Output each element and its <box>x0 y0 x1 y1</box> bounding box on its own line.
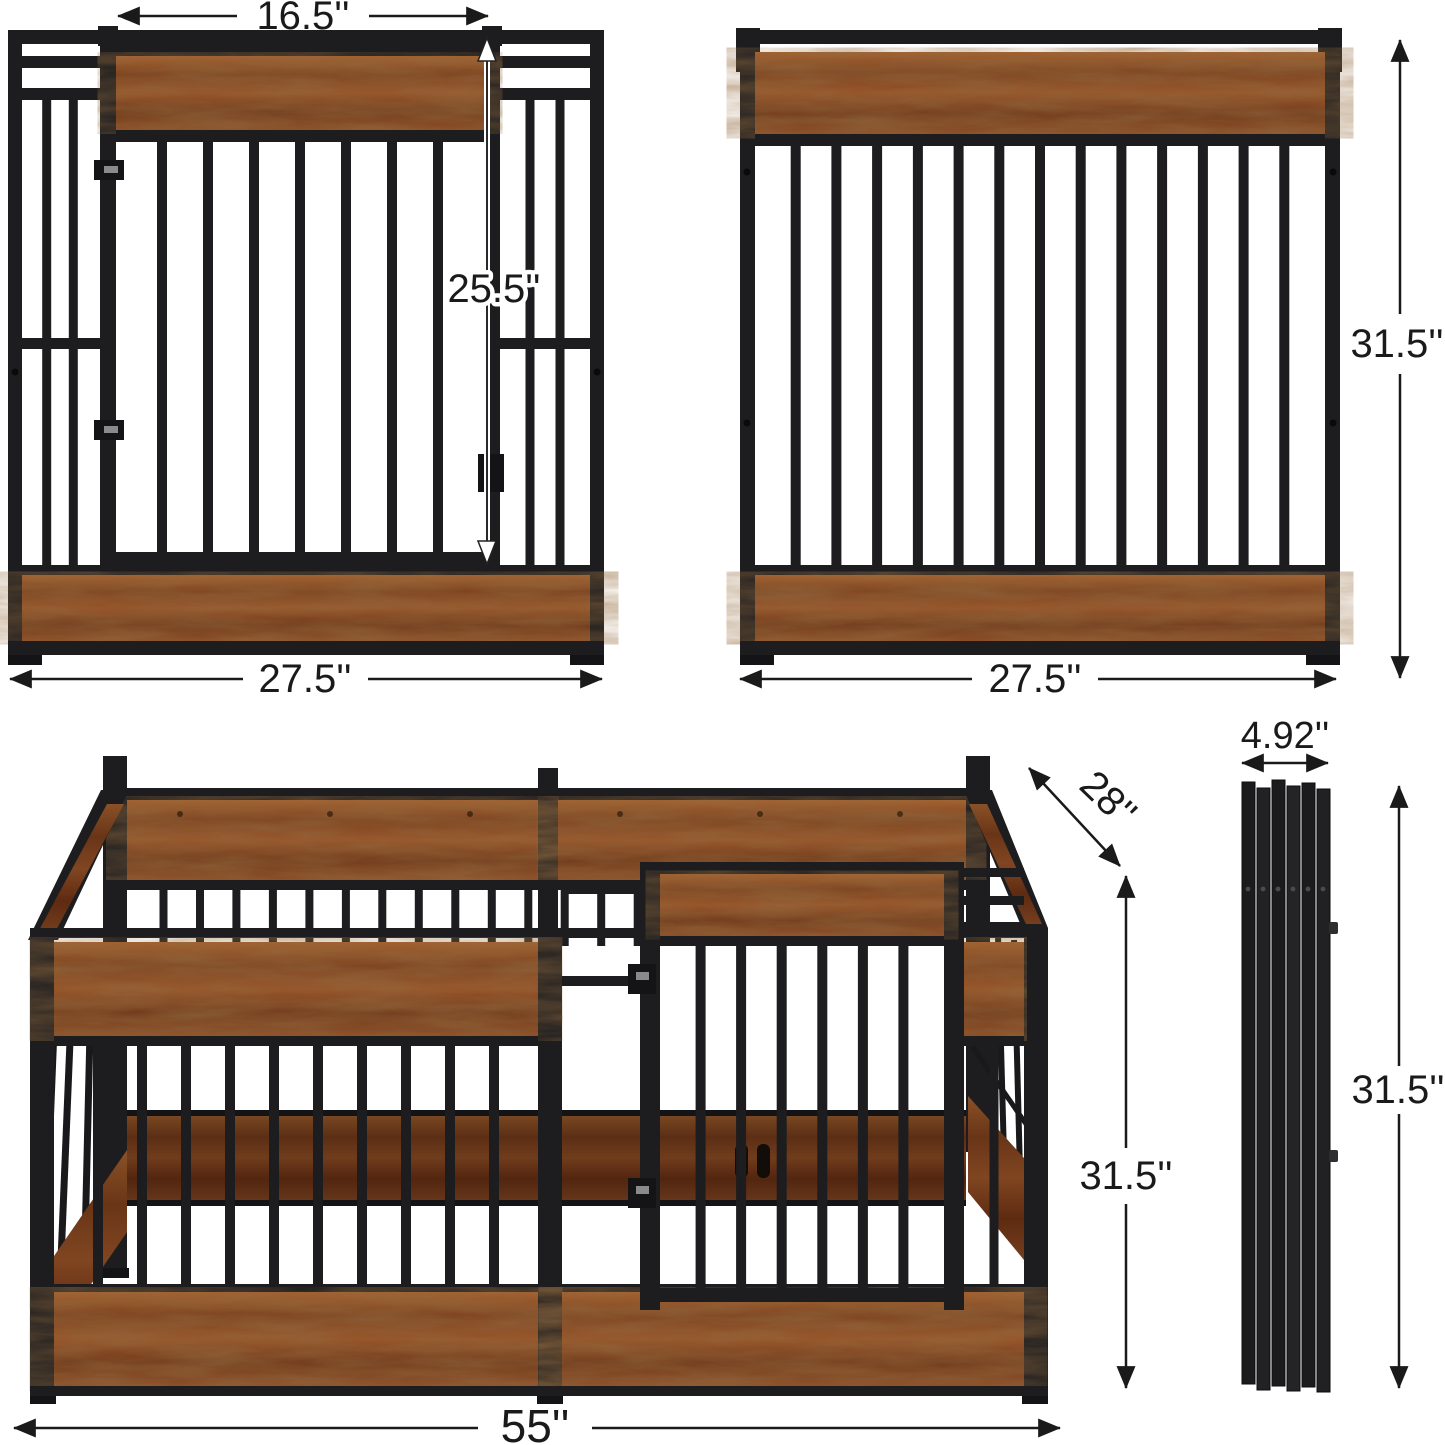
side-bars-left <box>42 100 78 565</box>
dim-left-panel-width-label: 27.5'' <box>258 657 351 701</box>
side-bars-right <box>526 100 565 565</box>
door-top-wood-plank <box>116 56 484 130</box>
pen-front-right-bars <box>990 1046 999 1290</box>
bottom-wood-plank <box>755 575 1325 641</box>
pen-door-latch <box>628 1178 656 1208</box>
stack-knob-top <box>1329 922 1338 934</box>
dim-right-panel-width-label: 27.5'' <box>988 657 1081 701</box>
folded-panel-stack <box>1242 780 1338 1392</box>
pen-door-hinge <box>628 964 656 994</box>
pen-door-wood <box>660 874 944 936</box>
pen-front-left-wood <box>54 942 538 1036</box>
door-latch <box>478 454 504 492</box>
pen-door <box>628 862 964 1310</box>
stack-knob-bottom <box>1329 1150 1338 1162</box>
dim-stack-height-label: 31.5'' <box>1351 1068 1444 1112</box>
bottom-wood-plank <box>22 575 590 641</box>
pen-front-right-wood <box>964 942 1024 1036</box>
dim-stack-depth: 4.92'' <box>1241 715 1329 763</box>
pen-kickboard-left <box>54 1292 538 1386</box>
back-panel <box>736 28 1342 665</box>
product-dimension-diagram: 16.5'' 25.5'' 27.5'' 31.5'' 27.5'' <box>0 0 1445 1445</box>
panel-bars <box>791 146 1290 565</box>
dim-pen-height-label: 31.5'' <box>1079 1154 1172 1198</box>
dim-door-width-label: 16.5'' <box>256 0 349 38</box>
dim-right-panel-width: 27.5'' <box>740 657 1336 701</box>
dim-pen-height: 31.5'' <box>1079 876 1172 1388</box>
dim-stack-height: 31.5'' <box>1351 786 1444 1388</box>
dim-pen-width: 55'' <box>14 1400 1060 1445</box>
dim-pen-depth: 28'' <box>1029 762 1145 866</box>
door-bars <box>157 142 443 552</box>
door-hinge-bottom <box>94 420 124 440</box>
dim-pen-width-label: 55'' <box>501 1400 570 1445</box>
top-wood-plank <box>755 52 1325 134</box>
dim-right-panel-height-label: 31.5'' <box>1350 322 1443 366</box>
diagram-canvas: 16.5'' 25.5'' 27.5'' 31.5'' 27.5'' <box>0 0 1445 1445</box>
dim-door-height-label: 25.5'' <box>447 267 540 311</box>
assembled-pen <box>28 756 1048 1404</box>
door-hinge-top <box>94 160 124 180</box>
dim-right-panel-height: 31.5'' <box>1350 40 1443 678</box>
dim-left-panel-width: 27.5'' <box>10 657 602 701</box>
dim-stack-depth-label: 4.92'' <box>1241 715 1329 757</box>
front-panel-with-door <box>8 26 604 665</box>
